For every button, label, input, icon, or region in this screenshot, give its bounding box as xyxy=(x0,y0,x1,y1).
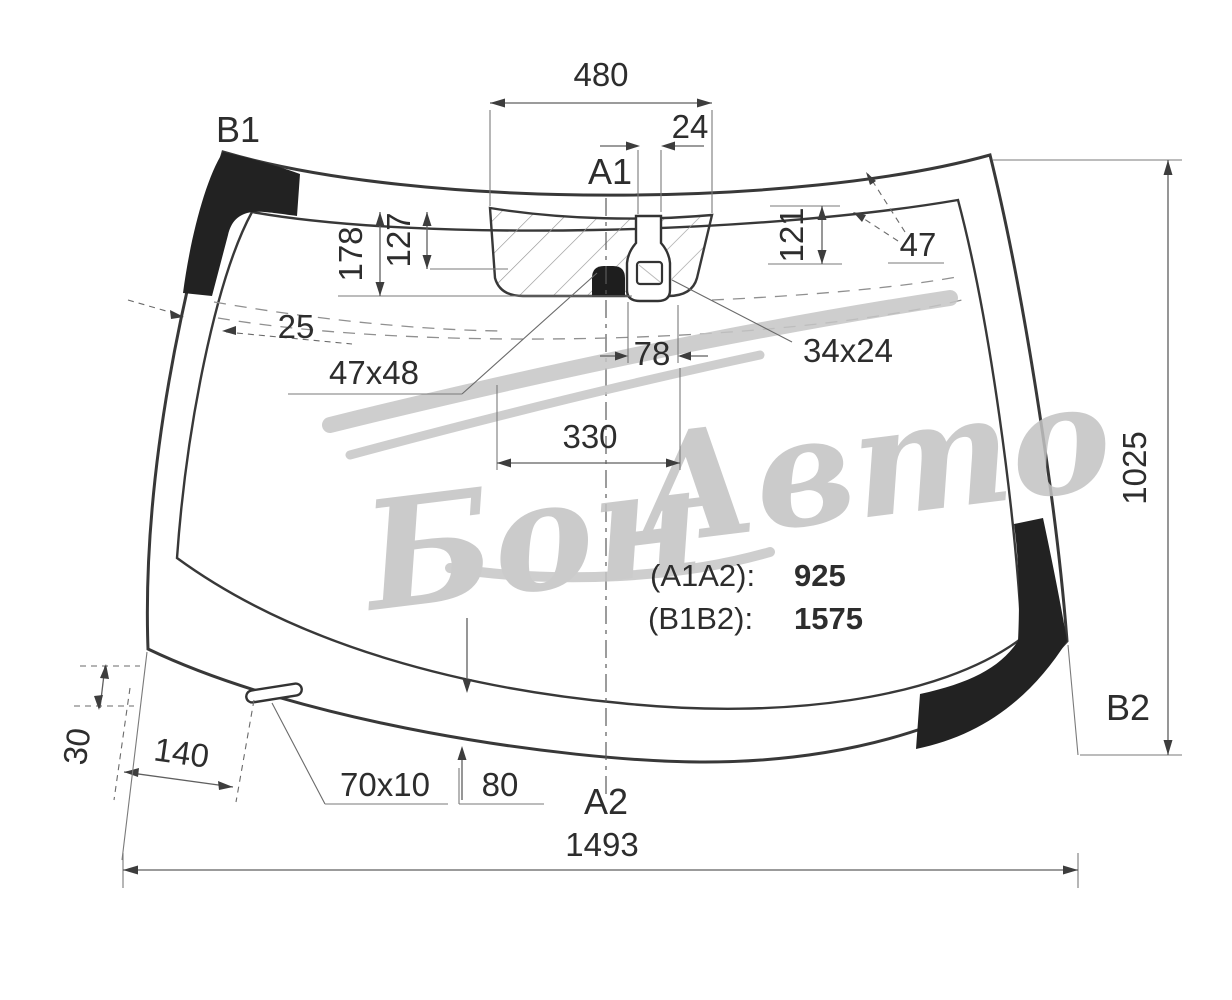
dim-80-group: 80 xyxy=(458,618,545,804)
dim-47-group: 47 xyxy=(853,172,944,263)
dim-25: 25 xyxy=(278,308,315,345)
dim-24: 24 xyxy=(672,108,709,145)
label-a1: A1 xyxy=(588,151,632,192)
dim-178: 178 xyxy=(332,226,369,281)
watermark: Бон Авто xyxy=(330,298,1120,646)
note-b1b2-value: 1575 xyxy=(794,601,863,636)
label-a2: A2 xyxy=(584,781,628,822)
dim-70x10: 70x10 xyxy=(340,766,430,803)
dim-1025: 1025 xyxy=(1116,431,1153,504)
dim-127: 127 xyxy=(380,212,417,267)
b2-corner-patch xyxy=(916,518,1067,749)
dim-80: 80 xyxy=(482,766,519,803)
dim-140: 140 xyxy=(152,730,212,774)
dim-34x24: 34x24 xyxy=(803,332,893,369)
label-b2: B2 xyxy=(1106,687,1150,728)
dim-47x48: 47x48 xyxy=(329,354,419,391)
dim-47: 47 xyxy=(900,226,937,263)
note-b1b2-label: (B1B2): xyxy=(648,601,753,636)
dim-127-group: 127 xyxy=(380,212,508,269)
note-a1a2-label: (A1A2): xyxy=(650,558,755,593)
dim-121-group: 121 xyxy=(768,206,842,264)
dim-121: 121 xyxy=(773,207,810,262)
dim-330: 330 xyxy=(562,418,617,455)
dim-1493: 1493 xyxy=(565,826,638,863)
b1-corner-patch xyxy=(183,152,300,296)
dim-480: 480 xyxy=(573,56,628,93)
windshield-diagram-page: Бон Авто 480 24 A1 178 127 xyxy=(0,0,1232,1000)
note-a1a2-value: 925 xyxy=(794,558,846,593)
frit-band-dash-left xyxy=(214,302,500,331)
dim-78: 78 xyxy=(634,335,671,372)
dim-30-group: 30 xyxy=(56,664,140,767)
mirror-mount xyxy=(592,266,625,297)
windshield-diagram: Бон Авто 480 24 A1 178 127 xyxy=(0,0,1232,1000)
label-b1: B1 xyxy=(216,109,260,150)
dim-140-group: 140 xyxy=(114,688,254,802)
dim-30: 30 xyxy=(56,726,98,768)
